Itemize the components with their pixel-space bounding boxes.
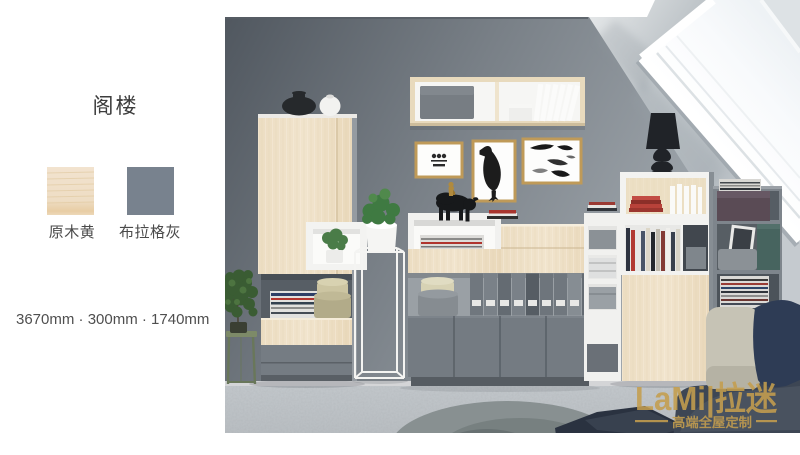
svg-text:LaMi|拉迷: LaMi|拉迷 (635, 380, 778, 417)
svg-text:高端全屋定制: 高端全屋定制 (672, 415, 752, 430)
